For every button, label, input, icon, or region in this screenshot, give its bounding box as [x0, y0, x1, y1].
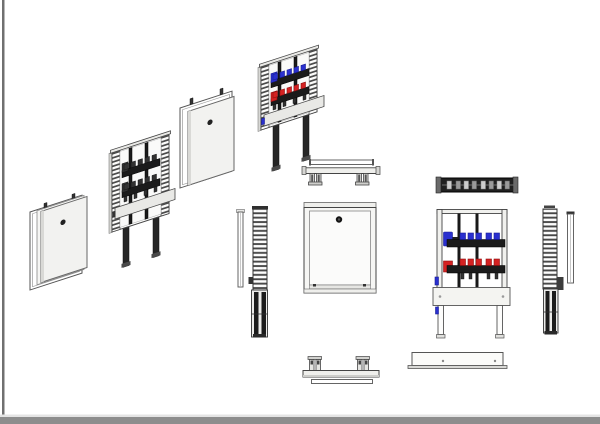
- screw-hole: [494, 360, 496, 362]
- valve-cap-blue: [273, 73, 278, 80]
- hinge-tab: [220, 88, 223, 95]
- valve-cap: [152, 174, 157, 181]
- bracket: [557, 277, 564, 290]
- leg: [497, 306, 503, 335]
- valve-cap-red: [476, 259, 482, 266]
- front-view-open: Front view - cabinet open with manifold: [433, 210, 510, 339]
- door-edge-shade: [188, 110, 191, 185]
- end-tick: [372, 159, 374, 166]
- door-panel: [41, 196, 87, 282]
- valve-cap: [138, 179, 143, 186]
- leg-slot: [365, 175, 367, 182]
- fitting: [461, 273, 464, 279]
- valve-cap-blue: [301, 64, 306, 71]
- frame-bottom-shade: [303, 375, 379, 377]
- foot-tick: [313, 284, 316, 287]
- door-panel: [188, 96, 234, 185]
- fitting: [154, 186, 157, 192]
- valve-cap-red: [468, 259, 474, 266]
- valve-cap-blue: [494, 233, 500, 240]
- leg: [438, 306, 444, 335]
- fitting: [124, 196, 127, 202]
- bottom-rail: [310, 285, 371, 289]
- side-view-right: Side view - frame rail and door: [543, 206, 575, 335]
- valve-cap: [131, 161, 136, 168]
- valve-top: [464, 181, 469, 189]
- technical-drawing: Exploded isometric - door and outer fram…: [0, 0, 600, 424]
- end-tick: [309, 159, 311, 166]
- manifold-bar-top: [447, 240, 505, 248]
- leg-bar: [262, 292, 267, 335]
- valve-top: [456, 181, 461, 189]
- valve-cap-red: [460, 259, 466, 266]
- leg-foot: [356, 357, 370, 360]
- fitting: [293, 98, 296, 104]
- frame-rail-right: [502, 210, 507, 289]
- valve-cap-red: [301, 82, 306, 89]
- valve-cap-red: [273, 91, 278, 98]
- valve-top: [472, 181, 477, 189]
- top-view-manifold: Top view - manifold: [436, 177, 518, 193]
- valve-cap-blue: [476, 233, 482, 240]
- bracket: [249, 277, 254, 284]
- footer-strip: [0, 417, 600, 424]
- valve-cap-blue: [287, 69, 292, 76]
- fitting: [273, 104, 276, 110]
- bottom-view-frame: Bottom view - frame with legs: [303, 357, 379, 384]
- leg-slot: [311, 175, 313, 182]
- leg-slot: [317, 361, 320, 365]
- leg-slot: [358, 175, 360, 182]
- hinge-tab: [190, 98, 193, 105]
- clip-blue: [435, 277, 439, 285]
- leg-slot: [359, 361, 362, 365]
- fitting: [487, 273, 490, 279]
- valve-cap-blue: [460, 233, 466, 240]
- footer-strip-light: [0, 415, 600, 418]
- iso-assembled-cabinet: Assembled isometric - cabinet with color…: [258, 43, 324, 176]
- cabinet-bottom-body: [412, 353, 503, 366]
- valve-cap-blue: [486, 233, 492, 240]
- leg-bar: [254, 292, 259, 335]
- valve-cap: [124, 183, 129, 190]
- valve-top: [497, 181, 502, 189]
- valve-top: [489, 181, 494, 189]
- plate-hole: [439, 295, 442, 298]
- valve-cap-red: [280, 89, 285, 96]
- end-cap: [376, 167, 380, 175]
- bottom-band: [304, 289, 376, 293]
- valve-cap: [145, 156, 150, 163]
- drawing-canvas: Exploded isometric - door and outer fram…: [0, 0, 600, 424]
- leg-foot: [308, 357, 322, 360]
- valve-cap-blue: [280, 71, 285, 78]
- valve-cap-blue: [468, 233, 474, 240]
- fitting: [303, 94, 306, 100]
- frame-top-bar: [437, 210, 507, 214]
- leg-foot: [496, 335, 505, 339]
- fitting: [134, 193, 137, 199]
- mounting-plate: [433, 288, 510, 306]
- top-cap: [304, 203, 376, 208]
- leg-slot: [311, 361, 314, 365]
- leg-bar: [546, 291, 550, 331]
- iso-frame-manifold: Exploded isometric - cabinet frame with …: [109, 129, 175, 272]
- iso-frame-door: Exploded isometric - frame with door pan…: [180, 84, 234, 188]
- front-view-closed: Front view - cabinet closed: [304, 203, 376, 294]
- fitting: [495, 273, 498, 279]
- frame-rail: [253, 209, 267, 290]
- fitting: [469, 273, 472, 279]
- leg-slot: [365, 361, 368, 365]
- leg-foot: [545, 331, 558, 335]
- leg-bar: [552, 291, 556, 331]
- clip-blue: [436, 307, 439, 314]
- plate-hole: [502, 295, 505, 298]
- leg-foot: [437, 335, 446, 339]
- cabinet-bottom-base: [408, 366, 507, 369]
- top-view-frame: Top view - frame with legs: [302, 159, 380, 185]
- valve-top: [505, 181, 510, 189]
- leg-foot: [356, 182, 370, 185]
- bottom-view-cabinet: Bottom view - cabinet body: [408, 353, 507, 369]
- frame-rail-left: [437, 210, 442, 289]
- leg: [303, 111, 309, 161]
- valve-cap: [145, 176, 150, 183]
- foot-tick: [363, 284, 366, 287]
- end-cap: [302, 167, 306, 175]
- leg-slot: [318, 175, 320, 182]
- clip: [113, 211, 116, 218]
- door-top-profile: [310, 160, 373, 165]
- manifold-bar-bottom: [447, 266, 505, 274]
- page-border-left: [2, 0, 5, 417]
- fitting: [283, 101, 286, 107]
- iso-exploded-door-frame: Exploded isometric - door and outer fram…: [30, 189, 87, 290]
- door-bottom-profile: [312, 380, 373, 384]
- valve-cap-blue: [294, 66, 299, 73]
- valve-top: [481, 181, 486, 189]
- end-bracket: [436, 177, 441, 193]
- door-edge-shade: [41, 210, 44, 282]
- valve-cap-red: [486, 259, 492, 266]
- door-knob-center: [338, 218, 340, 220]
- valve-cap-red: [494, 259, 500, 266]
- pipe: [476, 214, 479, 289]
- center-line: [442, 185, 514, 186]
- leg-foot: [309, 182, 323, 185]
- screw-hole: [442, 360, 444, 362]
- rail-top-cap: [544, 206, 555, 209]
- valve-cap: [124, 163, 129, 170]
- frame-rail-left: [112, 149, 120, 232]
- leg-foot: [253, 334, 266, 338]
- side-view-left: Side view - door and frame rail: [237, 206, 269, 338]
- frame-rail: [543, 209, 557, 289]
- valve-top: [447, 181, 452, 189]
- valve-cap-red: [287, 87, 292, 94]
- valve-cap: [131, 181, 136, 188]
- clip-blue: [262, 118, 265, 125]
- valve-cap-red: [294, 84, 299, 91]
- pipe: [458, 214, 461, 289]
- valve-cap: [138, 159, 143, 166]
- leg: [273, 121, 279, 171]
- frame-top-shade: [303, 168, 379, 170]
- valve-cap: [152, 154, 157, 161]
- fitting: [144, 190, 147, 196]
